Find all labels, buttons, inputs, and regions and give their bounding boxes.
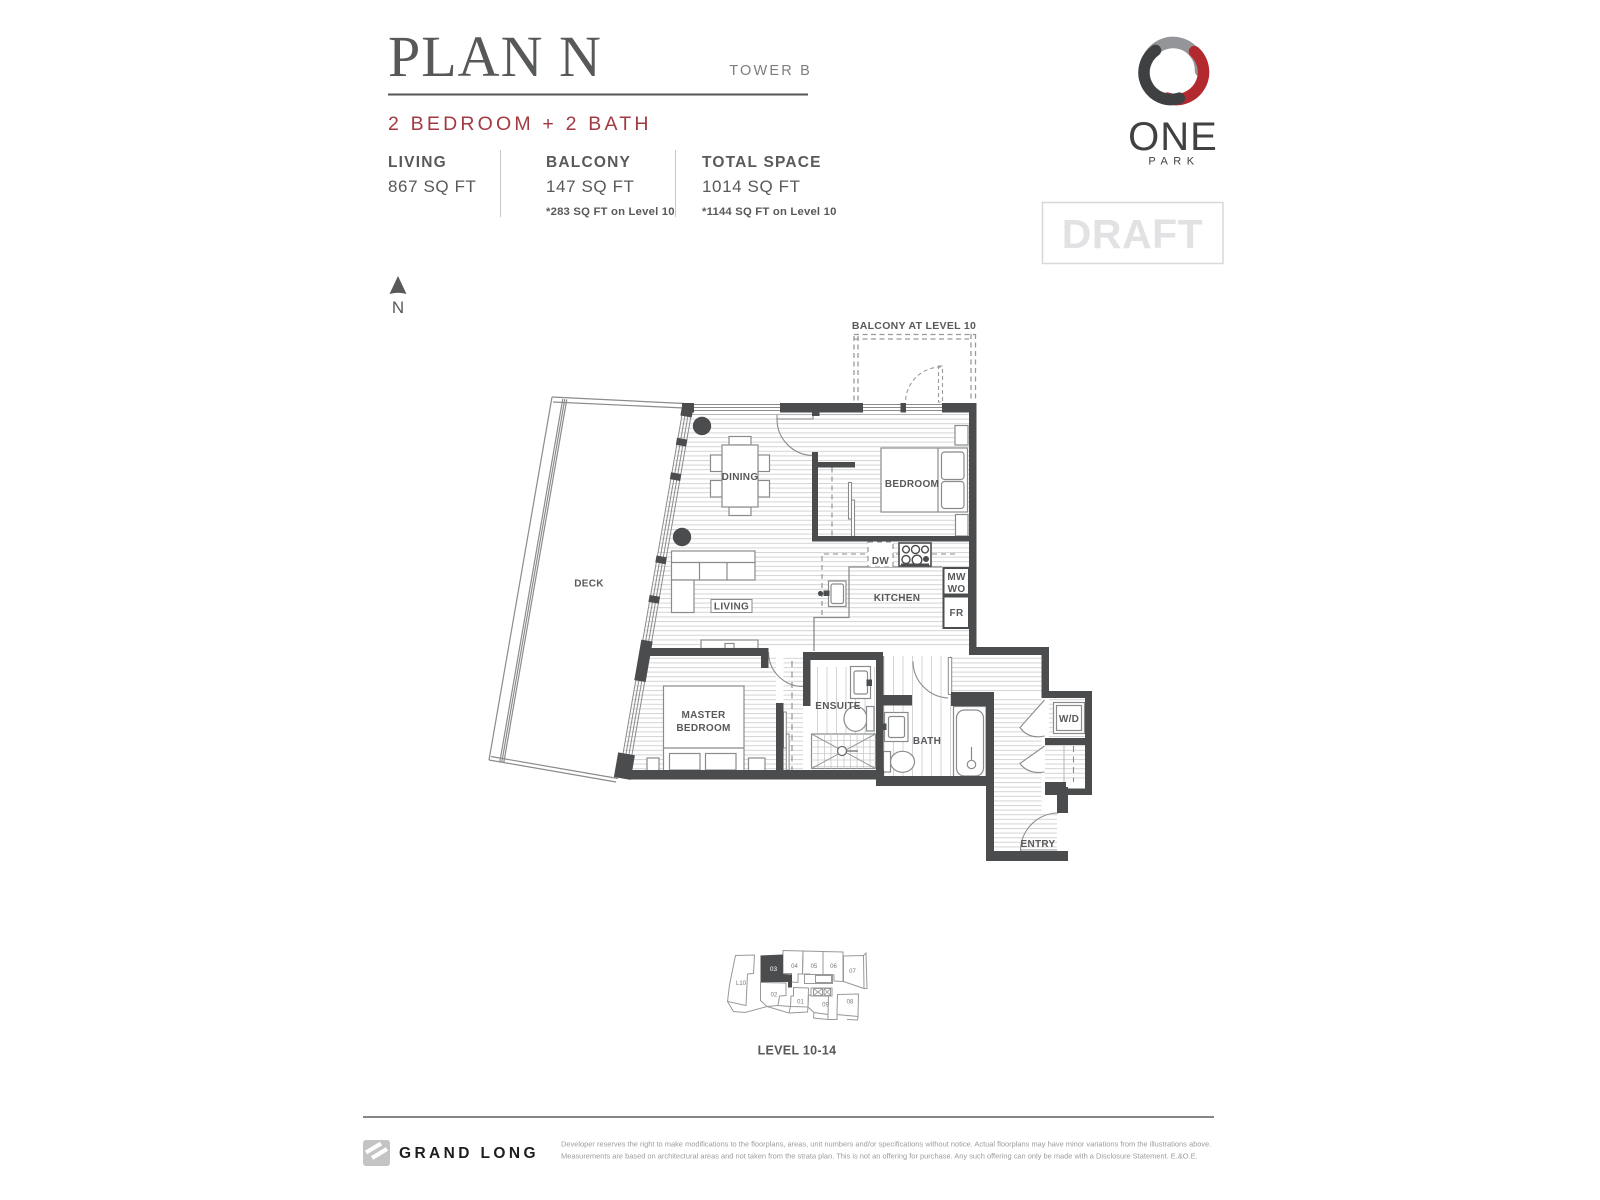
- svg-text:*1144 SQ FT on Level 10: *1144 SQ FT on Level 10: [702, 206, 837, 218]
- svg-text:BEDROOM: BEDROOM: [676, 723, 730, 734]
- svg-text:TOWER B: TOWER B: [729, 63, 812, 79]
- svg-text:PLAN N: PLAN N: [388, 24, 602, 89]
- svg-text:DECK: DECK: [574, 579, 604, 590]
- svg-text:DW: DW: [872, 556, 890, 567]
- svg-text:ENTRY: ENTRY: [1020, 839, 1055, 850]
- svg-text:02: 02: [771, 993, 778, 999]
- svg-text:MASTER: MASTER: [681, 710, 725, 721]
- svg-text:TOTAL SPACE: TOTAL SPACE: [702, 154, 822, 171]
- svg-text:L10: L10: [736, 981, 747, 987]
- svg-text:FR: FR: [950, 608, 964, 619]
- svg-text:ONE: ONE: [1128, 115, 1218, 159]
- svg-text:09: 09: [822, 1003, 829, 1009]
- svg-text:03: 03: [770, 966, 778, 973]
- svg-text:07: 07: [849, 969, 856, 975]
- svg-text:Measurements are based on arch: Measurements are based on architectural …: [561, 1152, 1198, 1161]
- svg-text:06: 06: [830, 964, 837, 970]
- svg-text:1014 SQ FT: 1014 SQ FT: [702, 177, 801, 196]
- svg-text:04: 04: [791, 964, 798, 970]
- svg-text:Developer reserves the right t: Developer reserves the right to make mod…: [561, 1140, 1211, 1149]
- svg-text:BEDROOM: BEDROOM: [885, 479, 939, 490]
- svg-text:ENSUITE: ENSUITE: [815, 701, 860, 712]
- svg-text:W/D: W/D: [1059, 714, 1079, 725]
- svg-text:WO: WO: [948, 584, 966, 595]
- svg-text:LEVEL 10-14: LEVEL 10-14: [758, 1044, 837, 1058]
- svg-text:DRAFT: DRAFT: [1062, 211, 1203, 257]
- svg-text:BATH: BATH: [913, 736, 941, 747]
- svg-text:LIVING: LIVING: [714, 602, 749, 613]
- svg-text:KITCHEN: KITCHEN: [874, 593, 921, 604]
- svg-text:01: 01: [797, 1000, 804, 1006]
- svg-text:PARK: PARK: [1148, 156, 1199, 168]
- svg-text:DINING: DINING: [722, 472, 759, 483]
- svg-text:05: 05: [811, 964, 818, 970]
- svg-text:08: 08: [847, 1000, 854, 1006]
- svg-text:867 SQ FT: 867 SQ FT: [388, 177, 477, 196]
- svg-text:GRAND LONG: GRAND LONG: [399, 1145, 539, 1162]
- svg-text:BALCONY AT LEVEL 10: BALCONY AT LEVEL 10: [852, 320, 976, 332]
- svg-text:N: N: [392, 298, 404, 317]
- svg-text:MW: MW: [947, 572, 966, 583]
- svg-text:147 SQ FT: 147 SQ FT: [546, 177, 635, 196]
- svg-text:LIVING: LIVING: [388, 154, 447, 171]
- svg-text:2 BEDROOM + 2 BATH: 2 BEDROOM + 2 BATH: [388, 113, 652, 135]
- svg-text:*283 SQ FT on Level 10: *283 SQ FT on Level 10: [546, 206, 675, 218]
- svg-text:BALCONY: BALCONY: [546, 154, 631, 171]
